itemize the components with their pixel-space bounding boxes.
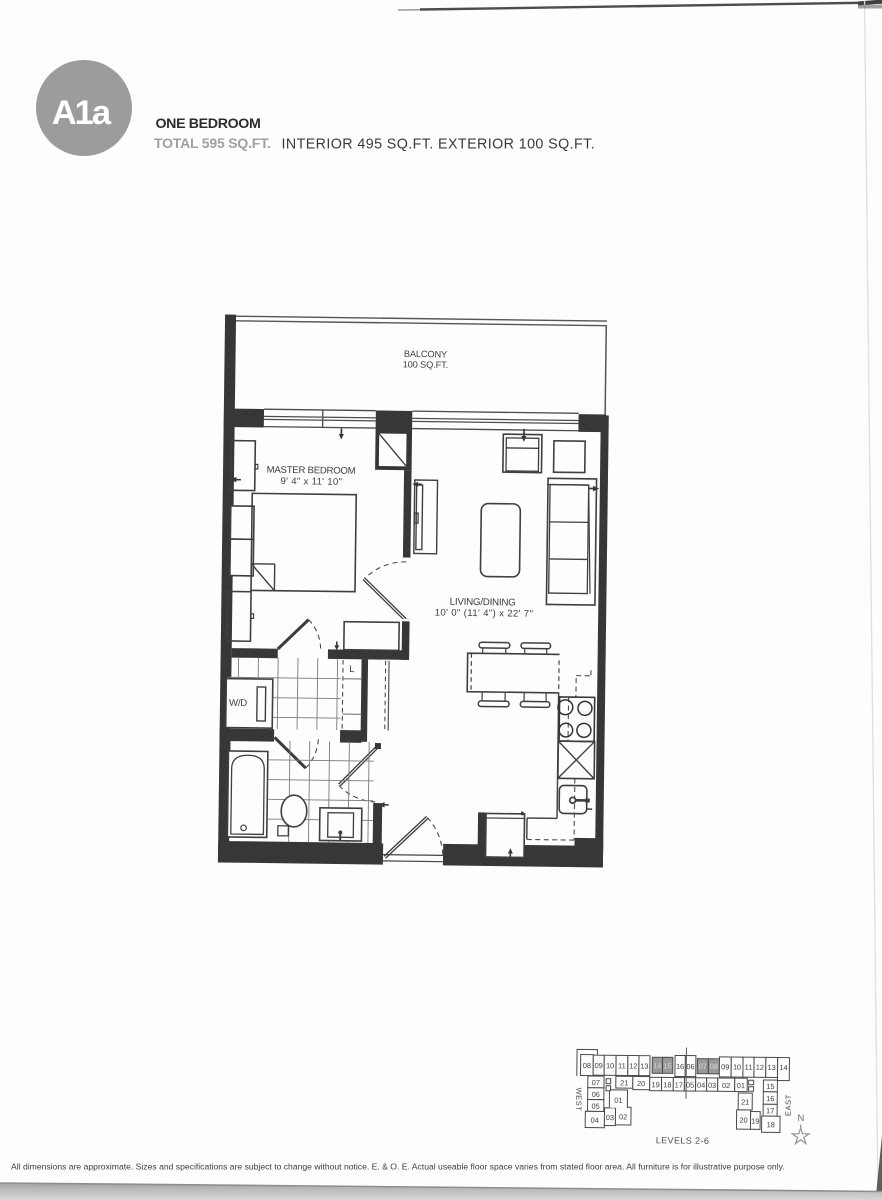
svg-text:08: 08 [583,1061,591,1070]
svg-text:17: 17 [675,1080,683,1089]
svg-text:04: 04 [591,1116,599,1125]
svg-text:08: 08 [710,1062,718,1071]
svg-text:06: 06 [592,1090,600,1099]
svg-text:06: 06 [686,1062,694,1071]
svg-text:21: 21 [620,1078,628,1087]
svg-text:100 SQ.FT.: 100 SQ.FT. [403,359,449,370]
svg-text:07: 07 [592,1078,600,1087]
svg-text:10: 10 [606,1061,614,1070]
svg-text:INTERIOR 495 SQ.FT. EXTERIOR: INTERIOR 495 SQ.FT. EXTERIOR 100 SQ.FT. [282,137,596,153]
svg-text:L: L [349,664,354,675]
svg-text:All dimensions are approximate: All dimensions are approximate. Sizes an… [11,1162,785,1172]
svg-text:10' 0" (11' 4") x 22' 7": 10' 0" (11' 4") x 22' 7" [435,607,534,619]
svg-text:01: 01 [614,1096,622,1105]
svg-text:13: 13 [768,1063,776,1072]
svg-text:20: 20 [637,1079,645,1088]
svg-text:16: 16 [766,1094,774,1103]
svg-text:WEST: WEST [574,1087,583,1111]
svg-text:04: 04 [697,1081,705,1090]
svg-text:LEVELS 2-6: LEVELS 2-6 [656,1135,710,1146]
svg-text:02: 02 [722,1081,730,1090]
svg-text:21: 21 [741,1098,749,1107]
svg-text:9' 4" x 11' 10": 9' 4" x 11' 10" [280,476,342,488]
svg-text:EAST: EAST [784,1094,793,1116]
svg-text:18: 18 [767,1120,775,1129]
svg-text:14: 14 [653,1061,661,1070]
svg-text:03: 03 [708,1081,716,1090]
svg-text:11: 11 [745,1063,753,1072]
svg-text:MASTER BEDROOM: MASTER BEDROOM [267,465,356,477]
svg-text:BALCONY: BALCONY [404,349,447,360]
svg-text:19: 19 [751,1117,759,1126]
svg-text:12: 12 [629,1061,637,1070]
svg-text:20: 20 [739,1116,747,1125]
svg-text:LIVING/DINING: LIVING/DINING [450,597,516,609]
svg-text:A1a: A1a [52,94,112,132]
svg-text:05: 05 [592,1102,600,1111]
svg-text:18: 18 [663,1080,671,1089]
svg-text:11: 11 [618,1061,626,1070]
svg-text:15: 15 [663,1061,671,1070]
svg-text:19: 19 [651,1080,659,1089]
svg-text:14: 14 [779,1063,787,1072]
svg-text:17: 17 [766,1106,774,1115]
svg-text:02: 02 [619,1112,627,1121]
svg-text:16: 16 [676,1062,684,1071]
svg-text:01: 01 [737,1081,745,1090]
svg-text:N: N [797,1113,804,1124]
svg-text:TOTAL 595 SQ.FT.: TOTAL 595 SQ.FT. [154,135,271,151]
svg-text:12: 12 [756,1063,764,1072]
svg-text:ONE BEDROOM: ONE BEDROOM [156,116,261,132]
svg-text:W/D: W/D [229,698,247,709]
svg-text:05: 05 [686,1081,694,1090]
svg-text:03: 03 [606,1113,614,1122]
svg-text:10: 10 [733,1063,741,1072]
svg-text:15: 15 [766,1082,774,1091]
svg-text:13: 13 [640,1062,648,1071]
svg-text:09: 09 [721,1062,729,1071]
svg-text:09: 09 [595,1061,603,1070]
svg-text:07: 07 [699,1062,707,1071]
